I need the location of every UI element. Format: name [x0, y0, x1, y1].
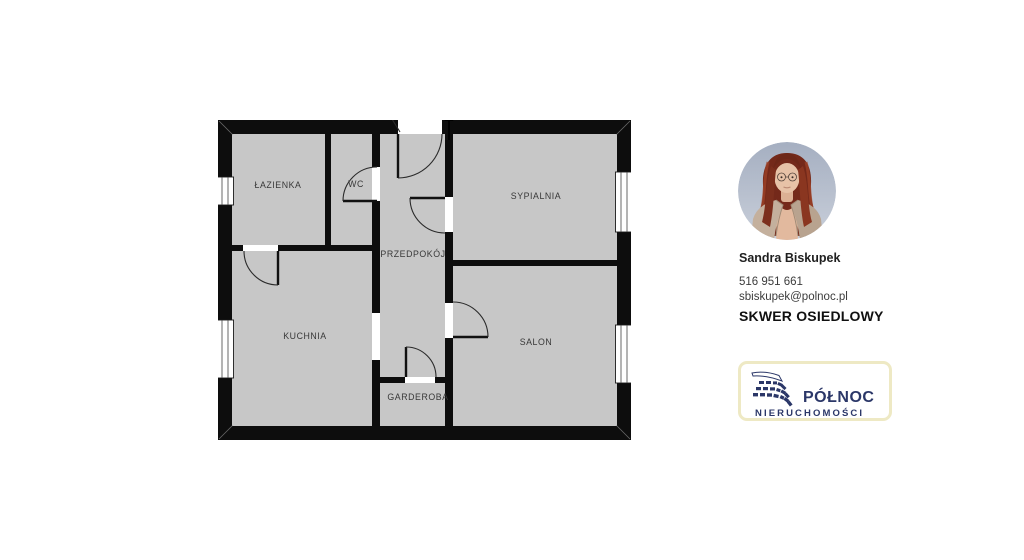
logo-brand-text: PÓŁNOC: [803, 389, 874, 407]
sypialnia-door-opening: [445, 197, 453, 232]
room-label-wc: WC: [348, 179, 364, 189]
agent-avatar: [738, 142, 836, 240]
listing-title: SKWER OSIEDLOWY: [739, 308, 884, 324]
window-icon: [616, 325, 632, 383]
wc-door-opening: [372, 167, 380, 201]
wall-sypialnia-salon: [445, 260, 617, 266]
kuchnia-passage-opening: [372, 313, 380, 360]
room-label-przedpokoj: PRZEDPOKÓJ: [380, 249, 445, 259]
window-icon: [218, 177, 234, 205]
window-icon: [616, 172, 632, 232]
room-label-sypialnia: SYPIALNIA: [511, 191, 561, 201]
room-label-garderoba: GARDEROBA: [387, 392, 448, 402]
agent-phone: 516 951 661: [739, 276, 803, 288]
agent-name: Sandra Biskupek: [739, 251, 840, 265]
window-icon: [218, 320, 234, 378]
entrance-opening: [398, 120, 442, 134]
garderoba-door-opening: [405, 377, 435, 383]
logo-subtitle-text: NIERUCHOMOŚCI: [755, 408, 864, 419]
polnoc-logo-icon: [751, 368, 803, 408]
lazienka-door-opening: [243, 245, 278, 251]
room-label-salon: SALON: [520, 337, 553, 347]
room-label-kuchnia: KUCHNIA: [283, 331, 326, 341]
listing-floor-plan-page: ŁAZIENKA WC SYPIALNIA PRZEDPOKÓJ KUCHNIA…: [0, 0, 1024, 560]
floor-plan: ŁAZIENKA WC SYPIALNIA PRZEDPOKÓJ KUCHNIA…: [218, 120, 631, 440]
room-label-lazienka: ŁAZIENKA: [255, 180, 302, 190]
polnoc-logo: PÓŁNOC NIERUCHOMOŚCI: [738, 361, 892, 421]
wall-lazienka-wc: [325, 134, 331, 251]
agent-email: sbiskupek@polnoc.pl: [739, 291, 848, 303]
salon-door-opening: [445, 303, 453, 338]
floor-plan-drawing: ŁAZIENKA WC SYPIALNIA PRZEDPOKÓJ KUCHNIA…: [218, 120, 631, 440]
agent-portrait-illustration: [738, 142, 836, 240]
